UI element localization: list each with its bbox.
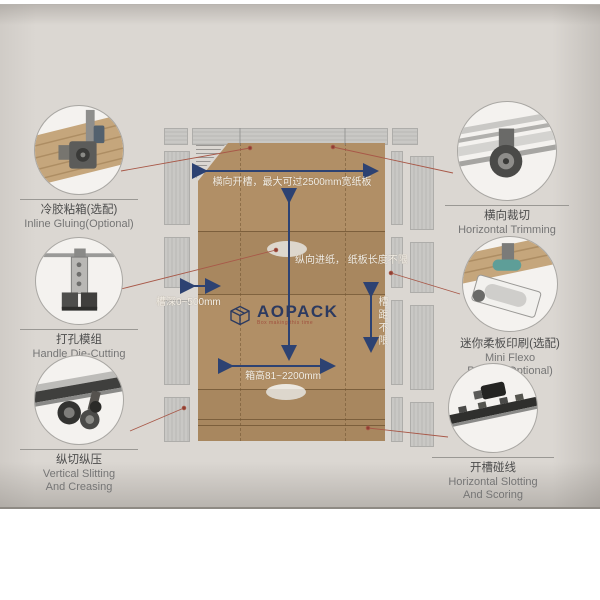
callout-horizontal-slotting: 开槽碰线 Horizontal Slotting And Scoring	[432, 363, 554, 502]
vertical-slitting-label-zh: 纵切纵压	[56, 454, 102, 467]
gluing-unit-icon	[35, 106, 123, 194]
bed-right-outer-rail	[410, 305, 434, 390]
max-width-annotation: 横向开槽，最大可过2500mm宽纸板	[192, 176, 392, 189]
bed-left-rail	[164, 151, 190, 225]
inline-gluing-label-en: Inline Gluing(Optional)	[24, 218, 133, 231]
callout-vertical-slitting: 纵切纵压 Vertical Slitting And Creasing	[20, 355, 138, 494]
callout-inline-gluing: 冷胶粘箱(选配) Inline Gluing(Optional)	[20, 105, 138, 231]
callout-divider	[445, 205, 569, 206]
brand-name: AOPACK	[257, 304, 338, 320]
horizontal-trimming-photo	[457, 101, 557, 201]
bed-top-rail	[192, 128, 388, 145]
horizontal-slotting-label-en: Horizontal Slotting And Scoring	[448, 476, 537, 502]
aopack-logo: AOPACK Box making this time	[228, 303, 338, 327]
bed-right-inner-rail	[391, 151, 403, 225]
bed-right-inner-rail	[391, 300, 403, 385]
callout-divider	[20, 329, 138, 330]
trimming-wheel-icon	[458, 102, 556, 200]
callout-divider	[432, 457, 554, 458]
callout-divider	[20, 199, 138, 200]
bed-right-outer-rail	[410, 402, 434, 447]
blank-shade	[198, 389, 385, 441]
bed-top-left-block	[164, 128, 188, 145]
bed-left-rail	[164, 300, 190, 385]
mini-flexo-label-zh: 迷你柔板印刷(选配)	[460, 338, 560, 351]
callout-divider	[20, 449, 138, 450]
bed-left-rail	[164, 237, 190, 288]
bed-top-right-block	[392, 128, 418, 145]
crease-line	[198, 294, 385, 295]
feed-direction-annotation: 纵向进纸， 纸板长度不限	[295, 254, 408, 267]
horizontal-slotting-photo	[448, 363, 538, 453]
bed-right-outer-rail	[410, 242, 434, 293]
slitting-wheels-icon	[35, 356, 123, 444]
slot-distance-annotation: 槽距不限	[375, 296, 388, 348]
callout-mini-flexo: 迷你柔板印刷(选配) Mini Flexo Printing(Optional)	[441, 236, 579, 378]
machine-diagram-photo: 横向开槽，最大可过2500mm宽纸板 纵向进纸， 纸板长度不限 槽深0~500m…	[0, 4, 600, 509]
horizontal-trimming-label-zh: 横向裁切	[484, 210, 530, 223]
flexo-printer-icon	[463, 237, 557, 331]
handle-die-cutting-photo	[35, 237, 123, 325]
bed-left-rail	[164, 397, 190, 442]
die-cutting-unit-icon	[36, 238, 122, 324]
brochure-page: 横向开槽，最大可过2500mm宽纸板 纵向进纸， 纸板长度不限 槽深0~500m…	[0, 0, 600, 600]
mini-flexo-photo	[462, 236, 558, 332]
box-logo-icon	[228, 303, 252, 327]
bed-right-inner-rail	[391, 397, 403, 442]
callout-horizontal-trimming: 横向裁切 Horizontal Trimming	[445, 101, 569, 237]
inline-gluing-photo	[34, 105, 124, 195]
callout-handle-die-cutting: 打孔模组 Handle Die-Cutting	[20, 237, 138, 361]
vertical-slitting-label-en: Vertical Slitting And Creasing	[43, 468, 115, 494]
slotting-shaft-icon	[449, 364, 537, 452]
horizontal-slotting-label-zh: 开槽碰线	[470, 462, 516, 475]
vertical-slitting-photo	[34, 355, 124, 445]
handle-die-cutting-label-zh: 打孔模组	[56, 334, 102, 347]
inline-gluing-label-zh: 冷胶粘箱(选配)	[41, 204, 118, 217]
bed-right-outer-rail	[410, 156, 434, 230]
box-height-annotation: 箱高81~2200mm	[228, 370, 338, 383]
